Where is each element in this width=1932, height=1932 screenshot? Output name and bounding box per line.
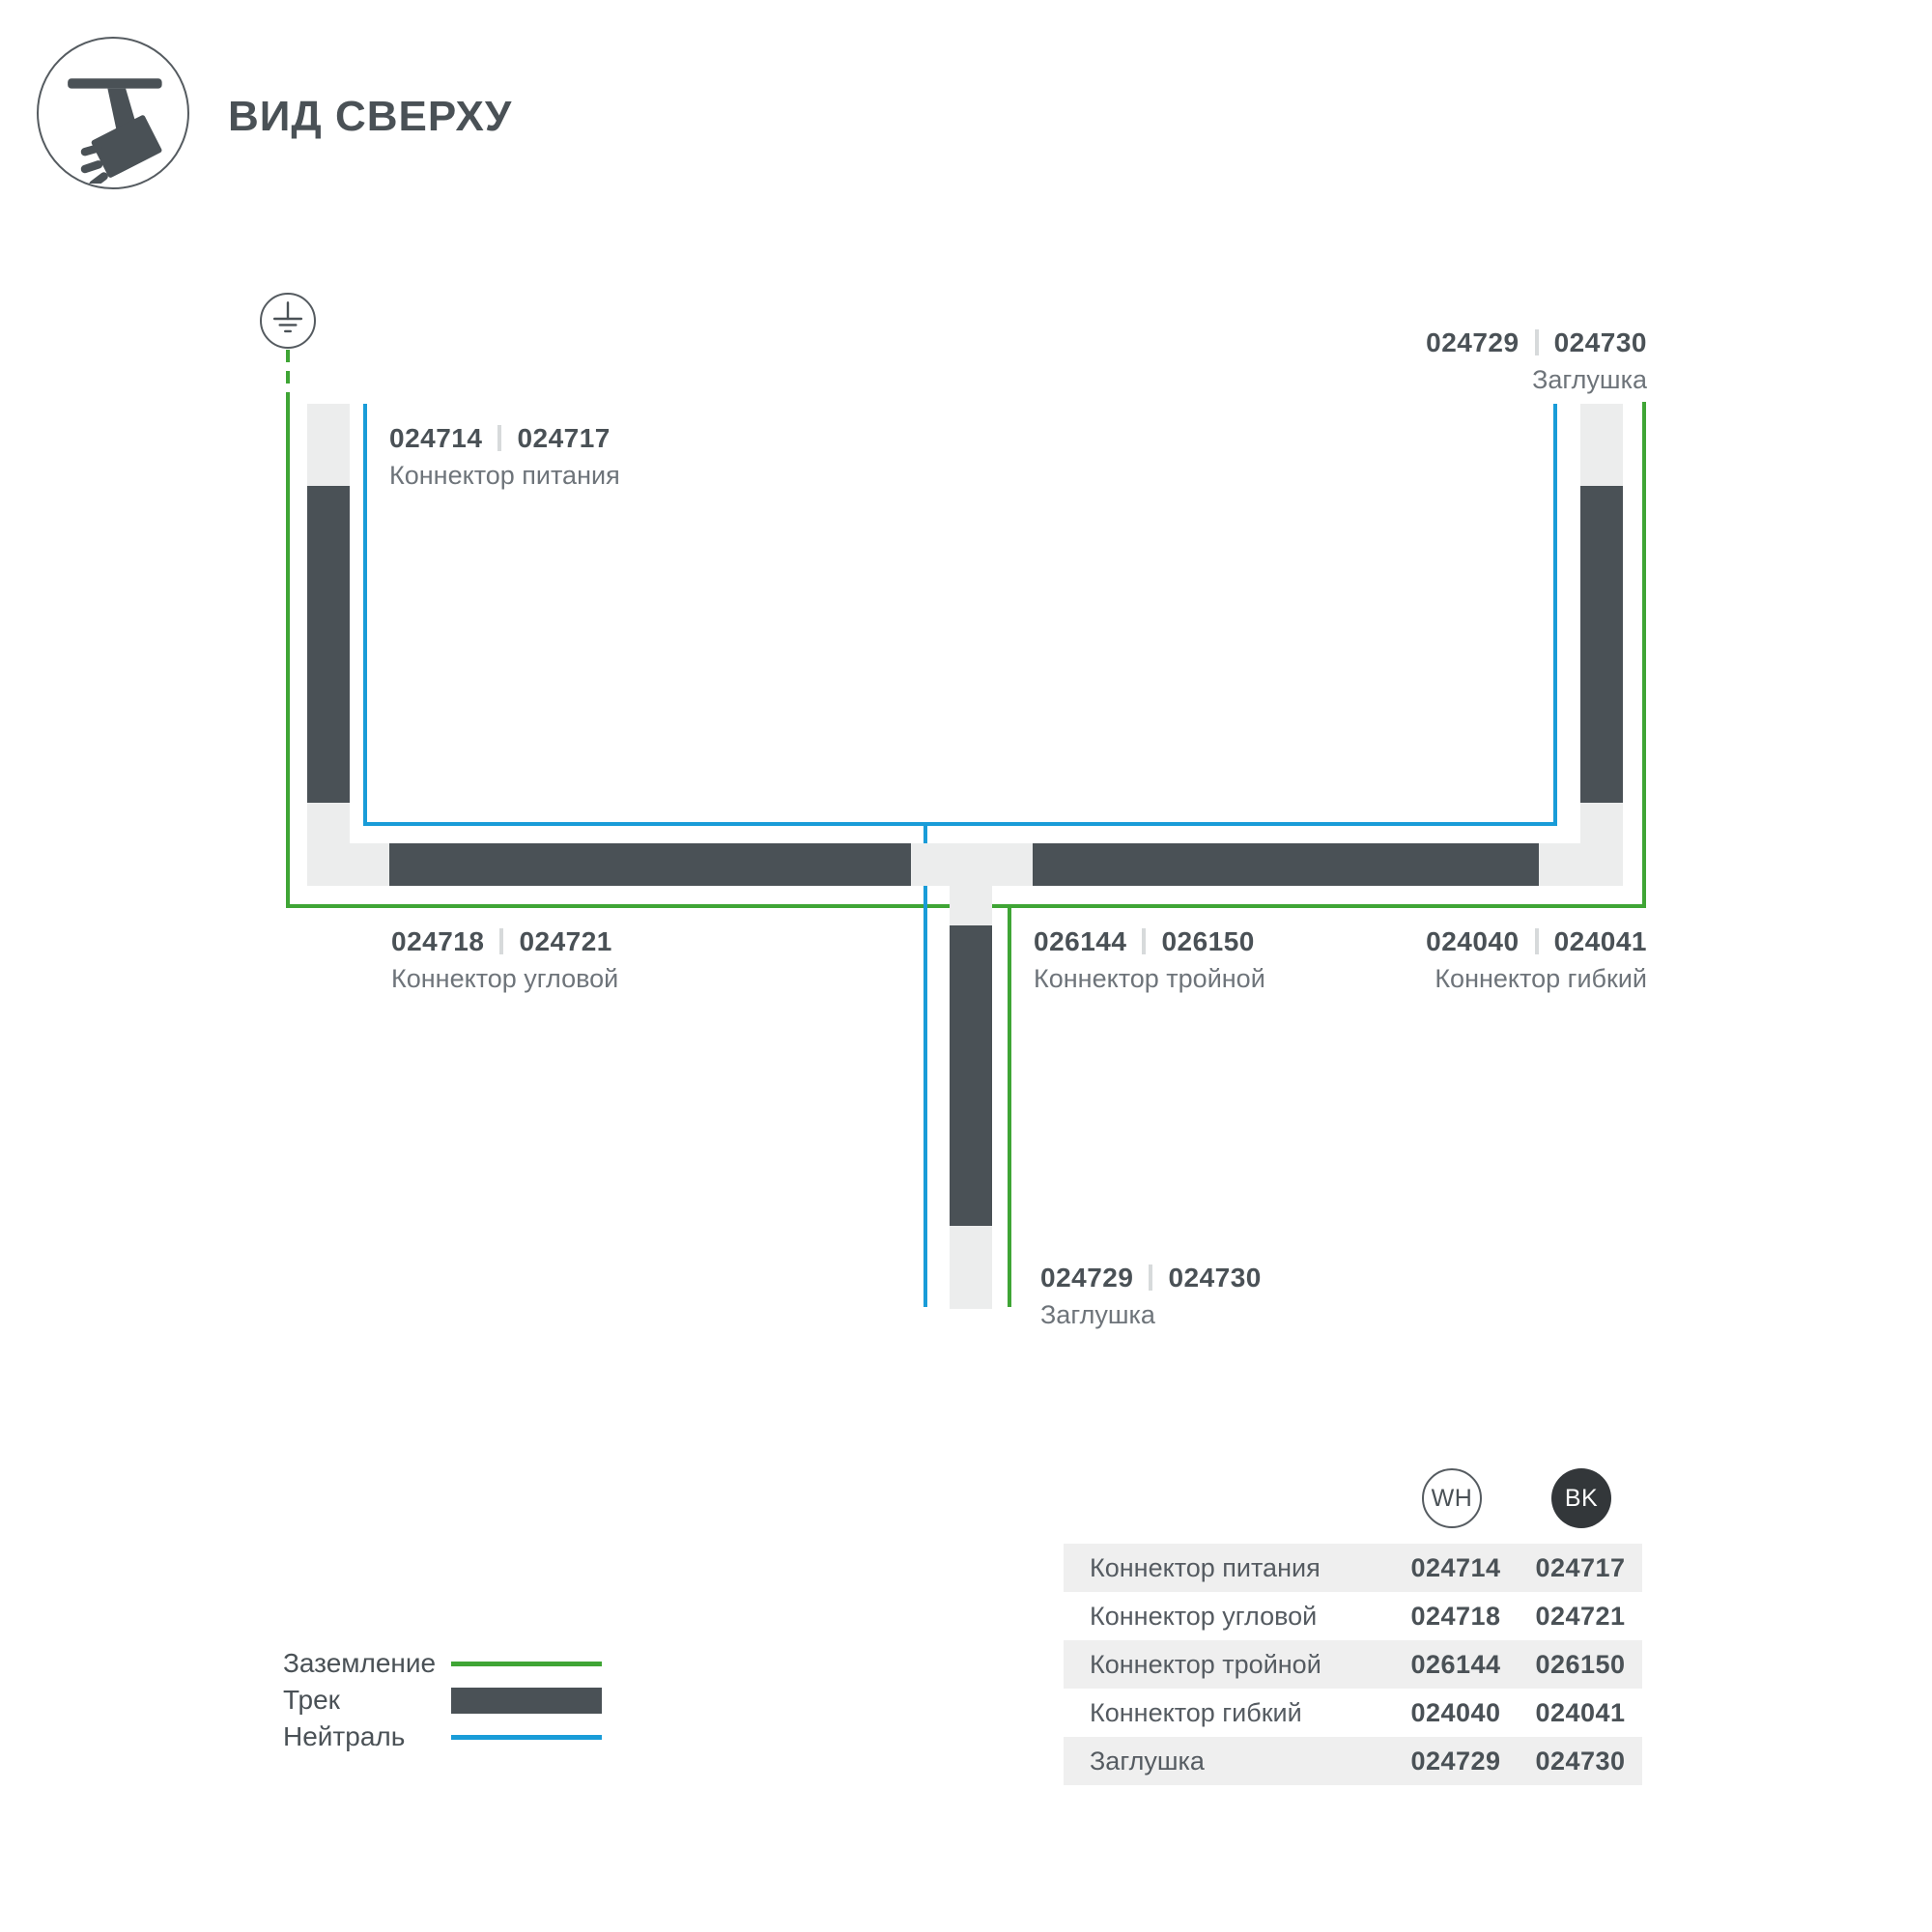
label-endcap-bottom: 024729024730 Заглушка: [1040, 1263, 1262, 1330]
legend-item-neutral: Нейтраль: [283, 1719, 602, 1755]
track-branch: [950, 925, 992, 1226]
legend-label: Заземление: [283, 1648, 451, 1679]
table-row: Коннектор угловой 024718 024721: [1064, 1592, 1642, 1640]
neutral-wire-horizontal: [363, 822, 1557, 826]
track-bottom-right: [1033, 843, 1539, 886]
track-right: [1580, 486, 1623, 803]
label-endcap-top-name: Заглушка: [1426, 365, 1647, 395]
row-name: Коннектор питания: [1064, 1553, 1393, 1583]
page: ВИД СВЕРХУ 024714024717 Коннектор: [0, 0, 1932, 1932]
label-triple-connector: 026144026150 Коннектор тройной: [1034, 926, 1265, 994]
code-divider: [499, 928, 503, 954]
row-code-wh: 024729: [1393, 1747, 1519, 1776]
label-flexible-connector: 024040024041 Коннектор гибкий: [1426, 926, 1647, 994]
ground-wire-branch: [1008, 908, 1011, 1307]
label-endcap-top-codes: 024729024730: [1426, 327, 1647, 358]
row-name: Коннектор тройной: [1064, 1650, 1393, 1680]
page-title: ВИД СВЕРХУ: [228, 93, 512, 141]
table-row: Коннектор питания 024714 024717: [1064, 1544, 1642, 1592]
track-left: [307, 486, 350, 803]
code-divider: [1535, 329, 1539, 355]
row-code-wh: 024040: [1393, 1698, 1519, 1728]
legend-item-track: Трек: [283, 1682, 602, 1719]
label-flexible-name: Коннектор гибкий: [1426, 964, 1647, 994]
label-endcap-bottom-name: Заглушка: [1040, 1300, 1262, 1330]
code-divider: [1535, 928, 1539, 954]
neutral-line-swatch: [451, 1735, 602, 1740]
product-table: Коннектор питания 024714 024717 Коннекто…: [1064, 1544, 1642, 1785]
neutral-wire-right: [1553, 404, 1557, 822]
power-connector-piece: [307, 404, 350, 486]
label-endcap-bottom-codes: 024729024730: [1040, 1263, 1262, 1293]
row-code-bk: 024717: [1519, 1553, 1642, 1583]
table-row: Коннектор гибкий 024040 024041: [1064, 1689, 1642, 1737]
label-power-connector: 024714024717 Коннектор питания: [389, 423, 620, 491]
row-code-bk: 024721: [1519, 1602, 1642, 1632]
row-code-bk: 026150: [1519, 1650, 1642, 1680]
track-bottom-left: [389, 843, 911, 886]
row-code-wh: 024718: [1393, 1602, 1519, 1632]
row-code-wh: 026144: [1393, 1650, 1519, 1680]
label-flexible-codes: 024040024041: [1426, 926, 1647, 957]
row-code-wh: 024714: [1393, 1553, 1519, 1583]
corner-connector-left-horizontal: [307, 843, 389, 886]
ground-wire-right: [1642, 402, 1646, 904]
label-corner-codes: 024718024721: [391, 926, 618, 957]
neutral-wire-branch: [923, 826, 927, 1307]
label-corner-name: Коннектор угловой: [391, 964, 618, 994]
endcap-top-piece: [1580, 404, 1623, 486]
code-divider: [497, 425, 501, 451]
legend-label: Нейтраль: [283, 1721, 451, 1752]
endcap-bottom-piece: [950, 1226, 992, 1309]
legend: Заземление Трек Нейтраль: [283, 1645, 602, 1755]
legend-label: Трек: [283, 1685, 451, 1716]
label-corner-connector: 024718024721 Коннектор угловой: [391, 926, 618, 994]
ground-earth-icon: [264, 295, 312, 348]
header-icon-badge: [37, 37, 189, 189]
ground-line-swatch: [451, 1662, 602, 1666]
ground-wire-left: [286, 398, 290, 908]
column-badge-white: WH: [1422, 1468, 1482, 1528]
row-code-bk: 024041: [1519, 1698, 1642, 1728]
legend-item-ground: Заземление: [283, 1645, 602, 1682]
row-name: Коннектор угловой: [1064, 1602, 1393, 1632]
ground-wire-dashed: [286, 350, 290, 400]
code-divider: [1142, 928, 1146, 954]
table-row: Коннектор тройной 026144 026150: [1064, 1640, 1642, 1689]
flexible-connector-vertical: [1580, 803, 1623, 886]
row-code-bk: 024730: [1519, 1747, 1642, 1776]
table-row: Заглушка 024729 024730: [1064, 1737, 1642, 1785]
code-divider: [1149, 1264, 1152, 1291]
track-swatch: [451, 1688, 602, 1714]
track-light-icon: [41, 39, 185, 188]
column-badge-black: BK: [1551, 1468, 1611, 1528]
neutral-wire-left: [363, 404, 367, 826]
label-endcap-top: 024729024730 Заглушка: [1426, 327, 1647, 395]
ground-symbol-badge: [260, 293, 316, 349]
label-power-codes: 024714024717: [389, 423, 620, 454]
triple-connector-bar: [911, 843, 1033, 886]
label-power-name: Коннектор питания: [389, 461, 620, 491]
label-triple-codes: 026144026150: [1034, 926, 1265, 957]
row-name: Заглушка: [1064, 1747, 1393, 1776]
triple-connector-stem: [950, 886, 992, 925]
label-triple-name: Коннектор тройной: [1034, 964, 1265, 994]
row-name: Коннектор гибкий: [1064, 1698, 1393, 1728]
